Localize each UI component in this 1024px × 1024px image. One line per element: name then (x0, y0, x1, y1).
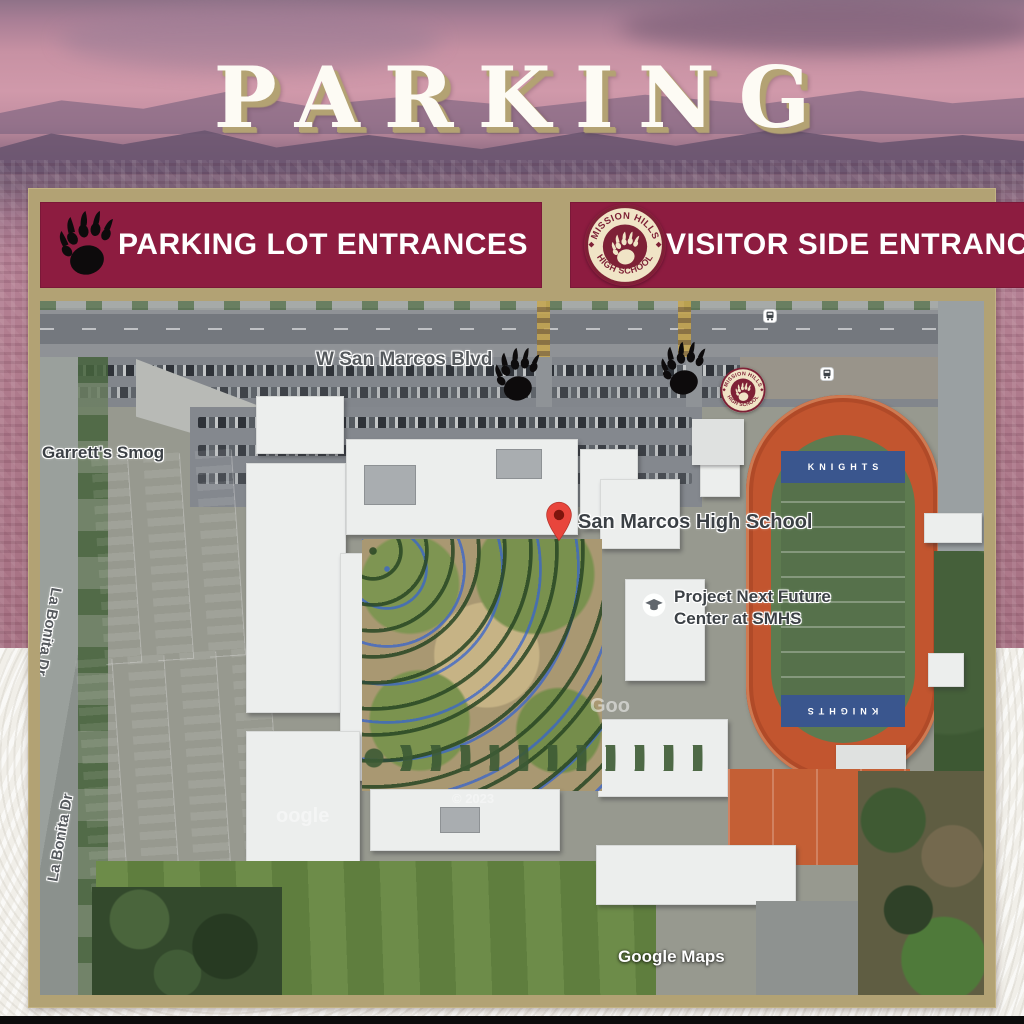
solar-panel-row (143, 452, 193, 660)
legend: PARKING LOT ENTRANCES VISITOR SIDE ENTRA… (40, 202, 984, 288)
legend-parking-entrances: PARKING LOT ENTRANCES (40, 202, 542, 288)
google-watermark-fragment: oogle (276, 805, 329, 828)
satellite-map: KNIGHTS KNIGHTS (40, 301, 984, 995)
poi-label-project-line2: Center at SMHS (674, 609, 802, 629)
bus-stop-icon (763, 309, 777, 323)
outbuilding (924, 513, 982, 543)
map-pin-icon (544, 501, 574, 543)
street-label-blvd: W San Marcos Blvd (316, 349, 492, 371)
legend-visitor-entrance: VISITOR SIDE ENTRANCE (570, 202, 1024, 288)
page-title: PARKING (0, 48, 1024, 147)
rooftop-unit (364, 465, 416, 505)
solar-panel-row (195, 449, 245, 657)
poi-label-garretts-smog: Garrett's Smog (42, 443, 164, 463)
endzone-south: KNIGHTS (781, 695, 905, 727)
school-building (596, 845, 796, 905)
bus-stop-icon (820, 367, 834, 381)
bottom-edge-bar (0, 1016, 1024, 1024)
parking-flyer: PARKING PARKING LOT ENTRANCES VISITOR SI… (0, 0, 1024, 1024)
school-logo-icon (584, 204, 666, 286)
rooftop-unit (440, 807, 480, 833)
south-east-lot (756, 901, 868, 995)
visitor-entrance-logo-marker (720, 367, 766, 413)
roadside-trees (40, 301, 984, 310)
bear-paw-icon (54, 210, 118, 280)
bear-paw-marker (658, 341, 708, 399)
rooftop-unit (496, 449, 542, 479)
north-east-lot (740, 357, 940, 399)
google-watermark-fragment: Goo (590, 695, 630, 718)
endzone-north: KNIGHTS (781, 451, 905, 483)
tree-line (362, 745, 712, 771)
poi-label-school: San Marcos High School (578, 511, 812, 534)
school-building (256, 396, 344, 454)
endzone-text: KNIGHTS (803, 462, 884, 472)
legend-visitor-label: VISITOR SIDE ENTRANCE (666, 228, 1024, 262)
poi-label-project-line1: Project Next Future (674, 587, 831, 607)
poster-frame: PARKING LOT ENTRANCES VISITOR SIDE ENTRA… (28, 188, 996, 1008)
bleachers (692, 419, 744, 465)
graduation-cap-icon (642, 593, 666, 617)
bear-paw-marker (492, 347, 542, 405)
school-building (246, 463, 346, 713)
legend-parking-label: PARKING LOT ENTRANCES (118, 228, 528, 262)
lane-markings (40, 328, 984, 330)
solar-canopy-lot (91, 448, 255, 664)
brush-bottom-right (858, 771, 984, 995)
outbuilding (928, 653, 964, 687)
cloud (620, 0, 1024, 54)
google-maps-attribution: Google Maps (618, 947, 725, 967)
endzone-text: KNIGHTS (803, 706, 884, 716)
trees-bottom-left (92, 887, 282, 995)
copyright-text: © 2023 (452, 791, 494, 806)
